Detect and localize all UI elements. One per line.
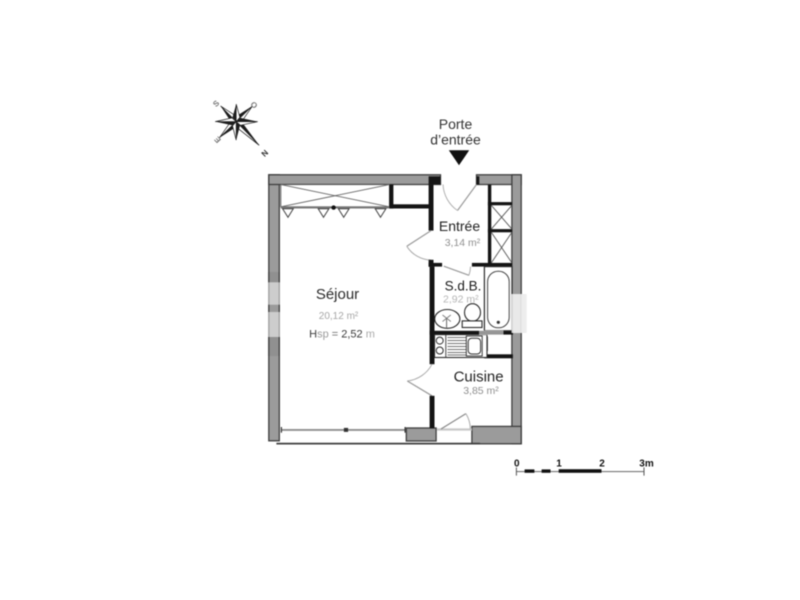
svg-text:1: 1 [556, 458, 562, 469]
svg-text:Hsp = 2,52 m: Hsp = 2,52 m [309, 328, 375, 340]
svg-text:20,12 m²: 20,12 m² [319, 311, 359, 322]
svg-text:Séjour: Séjour [316, 286, 359, 303]
svg-text:3,85 m²: 3,85 m² [463, 385, 499, 397]
svg-text:3,14 m²: 3,14 m² [445, 237, 481, 249]
svg-text:3m: 3m [639, 458, 654, 469]
svg-text:S.d.B.: S.d.B. [445, 278, 482, 293]
svg-text:Cuisine: Cuisine [454, 369, 504, 386]
svg-text:2,92 m²: 2,92 m² [443, 294, 479, 306]
svg-text:2: 2 [599, 458, 605, 469]
svg-text:Entrée: Entrée [439, 218, 480, 234]
svg-text:Porte: Porte [439, 116, 473, 132]
svg-text:d’entrée: d’entrée [430, 132, 481, 148]
svg-text:0: 0 [514, 458, 520, 469]
